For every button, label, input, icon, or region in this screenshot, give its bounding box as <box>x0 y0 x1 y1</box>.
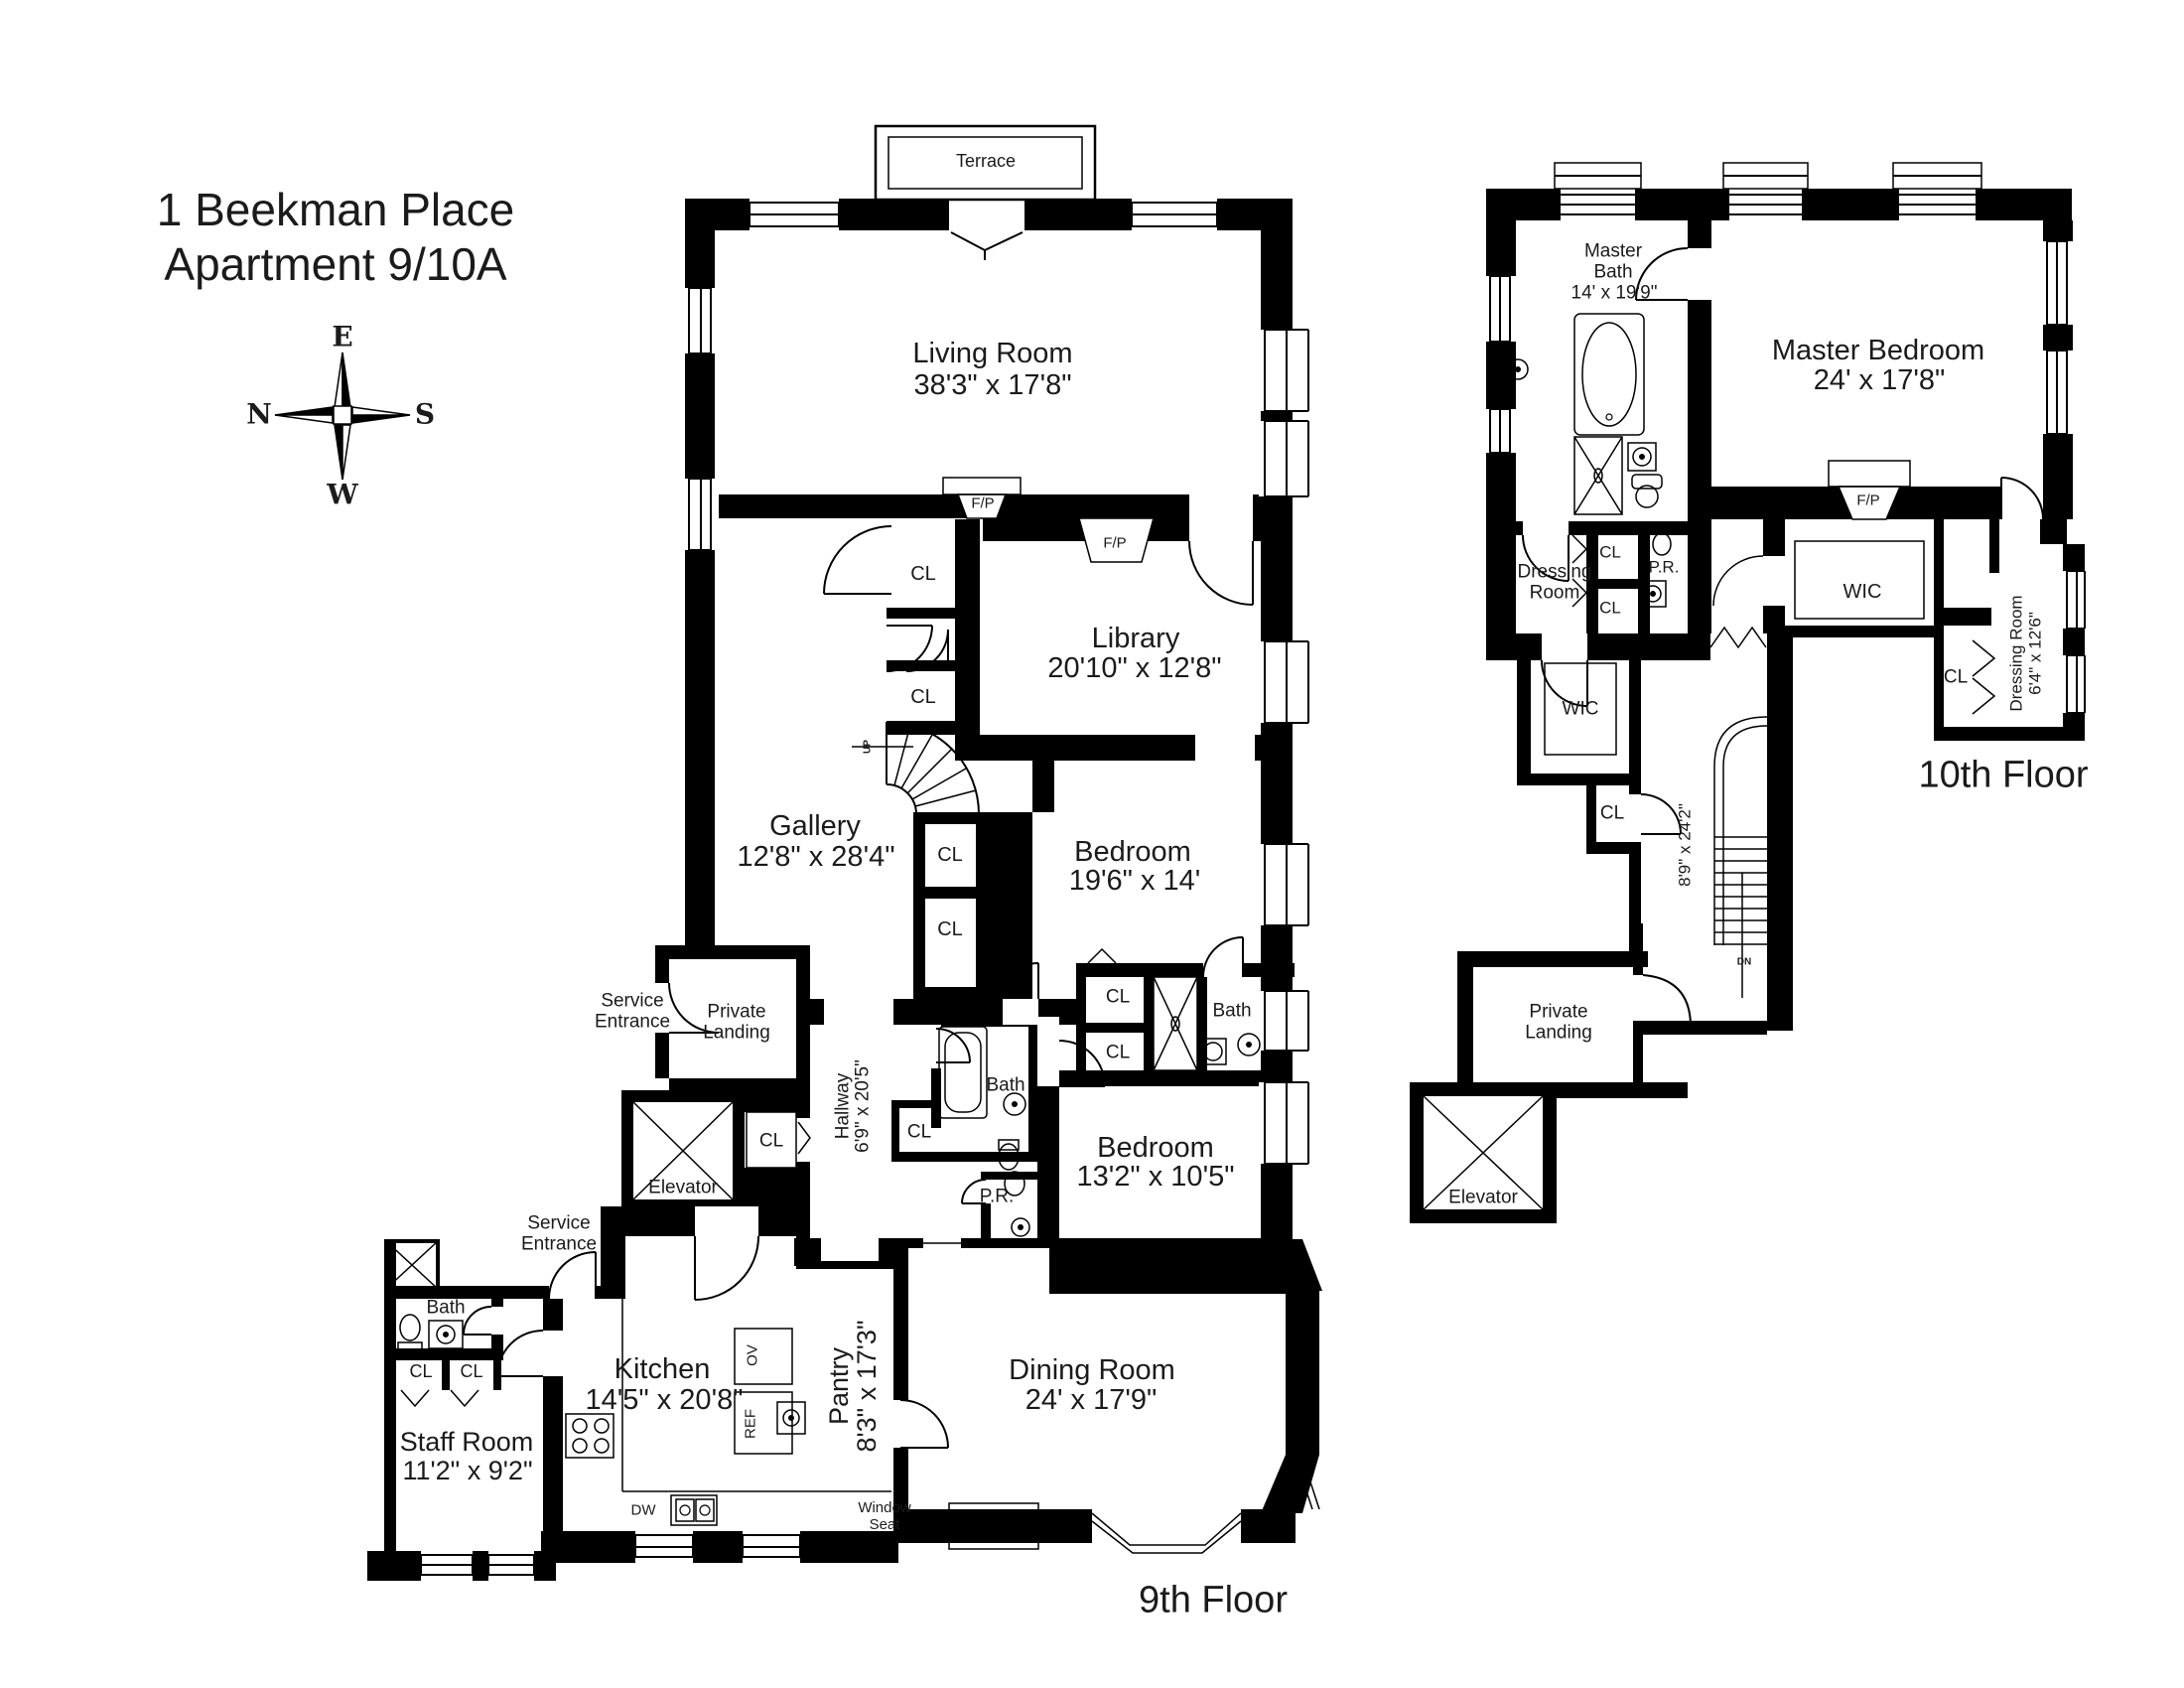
closet-stair-hall: CL <box>1600 802 1624 823</box>
closet-dressing-lower: CL <box>1599 598 1621 617</box>
staff-room-label: Staff Room <box>400 1427 534 1457</box>
bath-staff-label: Bath <box>426 1297 465 1318</box>
pantry-dims: 8'3" x 17'3" <box>852 1320 882 1452</box>
dressing-room-left-label: Dressing Room <box>1518 562 1592 605</box>
page-title-line2: Apartment 9/10A <box>164 239 506 291</box>
stairs-down-label: DN <box>1737 956 1751 967</box>
compass-west-label: W <box>327 479 357 509</box>
closet-library-upper: CL <box>910 563 936 585</box>
dressing-room-right-dims: 6'4" x 12'6" <box>2025 612 2044 695</box>
living-room-label: Living Room <box>912 338 1072 369</box>
gallery-dims: 12'8" x 28'4" <box>737 841 894 873</box>
fireplace-library-icon-label: F/P <box>1103 536 1126 553</box>
compass-east-label: E <box>332 321 352 352</box>
kitchen-dims: 14'5" x 20'8" <box>585 1384 743 1416</box>
closet-staff-left: CL <box>409 1361 432 1381</box>
closet-dressing-right: CL <box>1944 666 1968 687</box>
dishwasher-label: DW <box>631 1503 656 1520</box>
dining-room-label: Dining Room <box>1009 1354 1175 1386</box>
window-seat-label: Window Seat <box>858 1500 910 1534</box>
hallway-dims: 6'9" x 20'5" <box>852 1059 873 1153</box>
master-bath-dims: 14' x 19'9" <box>1571 282 1658 303</box>
stairs-dims-label: 8'9" x 24'2" <box>1675 803 1694 887</box>
bath-bedroom-large-label: Bath <box>1212 1000 1251 1021</box>
master-bedroom-dims: 24' x 17'8" <box>1814 364 1946 396</box>
elevator-9-label: Elevator <box>648 1177 718 1197</box>
elevator-10-label: Elevator <box>1448 1187 1518 1207</box>
staff-room-dims: 11'2" x 9'2" <box>402 1456 532 1485</box>
bath-hall-label: Bath <box>986 1074 1024 1095</box>
stairs-up-label: UP <box>862 740 873 754</box>
powder-room-10-label: P.R. <box>1649 557 1680 576</box>
closet-elevator: CL <box>759 1130 783 1151</box>
compass-rose <box>275 352 410 480</box>
bedroom-small-label: Bedroom <box>1097 1132 1214 1164</box>
service-entrance-upper-label: Service Entrance <box>595 991 670 1034</box>
compass-south-label: S <box>415 398 435 429</box>
living-room-dims: 38'3" x 17'8" <box>913 369 1071 401</box>
closet-staff-right: CL <box>460 1361 482 1381</box>
powder-room-9-label: P.R. <box>980 1186 1015 1206</box>
hallway-label: Hallway <box>832 1073 853 1140</box>
fireplace-master-icon-label: F/P <box>1856 493 1879 510</box>
private-landing-10-label: Private Landing <box>1525 1002 1592 1045</box>
master-bedroom-label: Master Bedroom <box>1772 335 1984 366</box>
pantry-label: Pantry <box>824 1347 854 1425</box>
page-title-line1: 1 Beekman Place <box>157 185 515 236</box>
dining-room-dims: 24' x 17'9" <box>1025 1384 1158 1416</box>
kitchen-label: Kitchen <box>614 1353 711 1385</box>
service-entrance-lower-label: Service Entrance <box>521 1213 597 1256</box>
oven-label: OV <box>746 1344 762 1366</box>
library-label: Library <box>1092 623 1180 654</box>
fireplace-living-icon-label: F/P <box>971 496 994 513</box>
dressing-room-right-label: Dressing Room <box>2006 595 2025 711</box>
closet-stairs-upper: CL <box>937 844 963 866</box>
closet-bedroom-small-upper: CL <box>1106 986 1130 1007</box>
wic-right-label: WIC <box>1843 581 1882 603</box>
refrigerator-label: REF <box>744 1409 760 1439</box>
bedroom-large-dims: 19'6" x 14' <box>1069 865 1201 897</box>
private-landing-9-label: Private Landing <box>703 1002 770 1045</box>
wic-left-label: WIC <box>1563 698 1599 719</box>
floor10-title: 10th Floor <box>1918 755 2088 797</box>
closet-library-lower: CL <box>910 686 936 708</box>
floor-plan-page: 1 Beekman Place Apartment 9/10A E N S W … <box>0 0 2184 1688</box>
bedroom-small-dims: 13'2" x 10'5" <box>1076 1161 1234 1193</box>
terrace-label: Terrace <box>956 151 1016 171</box>
closet-dressing-upper: CL <box>1599 542 1621 561</box>
compass-north-label: N <box>246 398 272 429</box>
library-dims: 20'10" x 12'8" <box>1047 652 1221 684</box>
closet-bedroom-small-lower: CL <box>1106 1042 1130 1062</box>
bedroom-large-label: Bedroom <box>1074 836 1191 868</box>
closet-stairs-lower: CL <box>937 918 963 940</box>
closet-hall-bath: CL <box>907 1121 931 1142</box>
gallery-label: Gallery <box>769 810 861 842</box>
floor9-title: 9th Floor <box>1139 1580 1288 1622</box>
master-bath-label: Master Bath <box>1584 241 1642 284</box>
